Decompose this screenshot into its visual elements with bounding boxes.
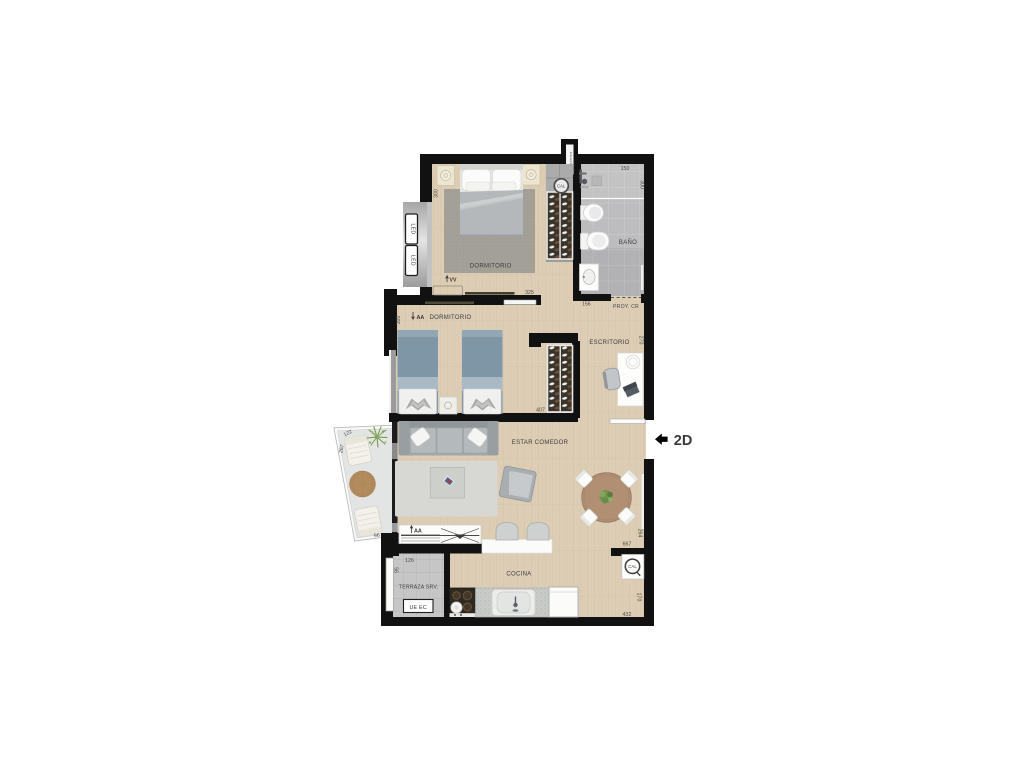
svg-text:AA: AA — [417, 315, 425, 321]
svg-text:BAÑO: BAÑO — [619, 239, 637, 246]
svg-text:270: 270 — [638, 336, 644, 345]
svg-text:300: 300 — [396, 316, 402, 325]
svg-text:300: 300 — [638, 180, 644, 189]
svg-text:170: 170 — [636, 593, 642, 602]
svg-text:126: 126 — [405, 558, 414, 564]
svg-text:325: 325 — [525, 290, 534, 296]
svg-text:ESCRITORIO: ESCRITORIO — [589, 340, 629, 346]
svg-text:DORMITORIO: DORMITORIO — [470, 264, 512, 270]
svg-text:AA: AA — [414, 529, 422, 535]
svg-text:PROY. CR: PROY. CR — [613, 304, 639, 310]
svg-text:2D: 2D — [674, 433, 693, 449]
svg-text:150: 150 — [621, 166, 630, 172]
svg-text:COCINA: COCINA — [506, 572, 531, 578]
svg-text:LED: LED — [410, 224, 416, 235]
svg-text:432: 432 — [623, 612, 632, 618]
svg-text:CAL: CAL — [628, 564, 637, 569]
svg-text:407: 407 — [536, 408, 545, 414]
svg-text:LED: LED — [410, 255, 416, 266]
svg-text:300: 300 — [434, 189, 440, 198]
svg-text:VV: VV — [450, 278, 457, 284]
svg-text:96: 96 — [374, 533, 381, 540]
svg-text:264: 264 — [637, 529, 643, 538]
svg-text:CAL: CAL — [557, 184, 566, 189]
svg-text:95: 95 — [395, 567, 401, 573]
svg-text:156: 156 — [582, 302, 591, 308]
svg-text:UE EC: UE EC — [409, 605, 426, 611]
svg-text:DORMITORIO: DORMITORIO — [430, 315, 472, 321]
svg-text:667: 667 — [623, 542, 632, 548]
svg-text:ESTAR COMEDOR: ESTAR COMEDOR — [512, 440, 569, 446]
svg-text:TERRAZA SRV.: TERRAZA SRV. — [399, 585, 438, 591]
